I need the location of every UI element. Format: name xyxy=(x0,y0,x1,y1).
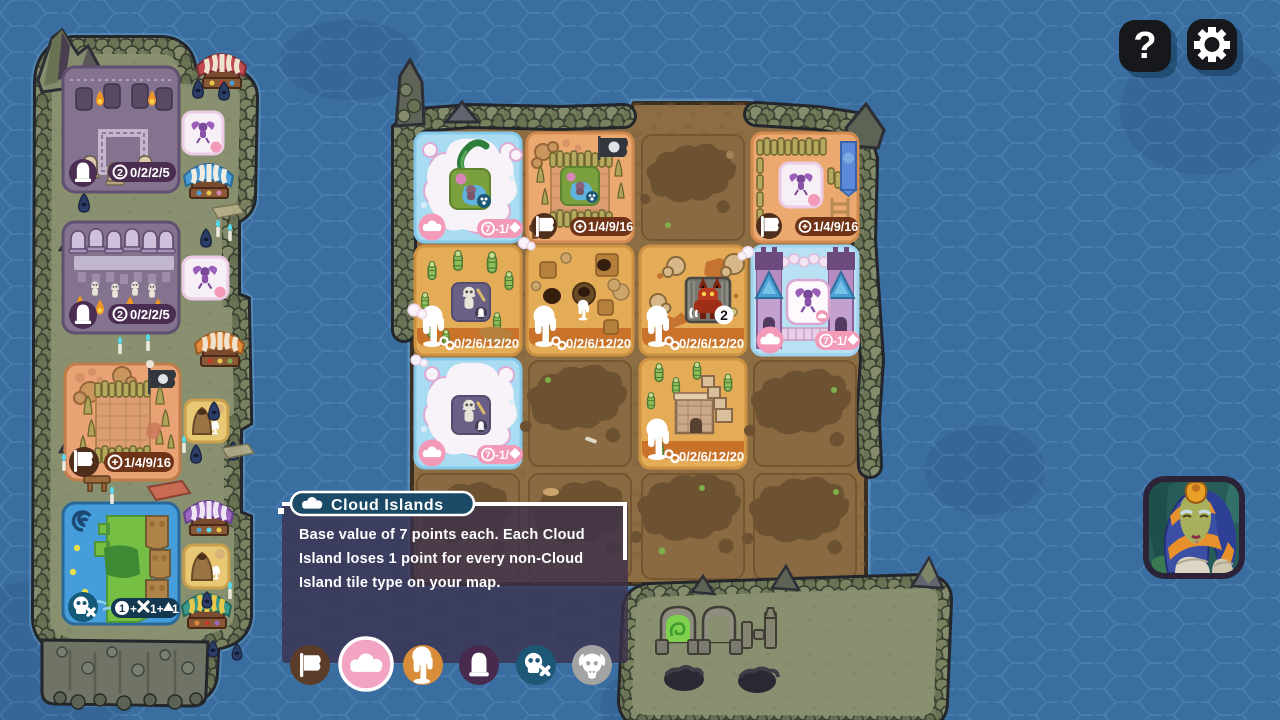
svg-text:?: ? xyxy=(1133,25,1156,67)
svg-text:7: 7 xyxy=(485,224,490,235)
svg-text:1+: 1+ xyxy=(150,602,164,616)
svg-text:0/2/6/12/20: 0/2/6/12/20 xyxy=(566,336,631,351)
svg-text:0/2/6/12/20: 0/2/6/12/20 xyxy=(679,336,744,351)
svg-text:-1/: -1/ xyxy=(495,222,510,236)
svg-text:2: 2 xyxy=(117,167,123,179)
svg-text:7: 7 xyxy=(823,336,828,347)
svg-text:0/2/2/5: 0/2/2/5 xyxy=(130,165,170,180)
svg-text:1: 1 xyxy=(172,602,179,616)
svg-text:Cloud Islands: Cloud Islands xyxy=(331,497,444,514)
svg-text:1/4/9/16: 1/4/9/16 xyxy=(588,220,633,234)
svg-text:0/2/6/12/20: 0/2/6/12/20 xyxy=(679,449,744,464)
svg-text:-1/: -1/ xyxy=(495,448,510,462)
svg-text:1: 1 xyxy=(119,603,125,615)
svg-text:-1/: -1/ xyxy=(833,334,848,348)
svg-text:0/2/6/12/20: 0/2/6/12/20 xyxy=(454,336,519,351)
svg-text:Island tile type on your map.: Island tile type on your map. xyxy=(299,575,501,591)
svg-text:Island loses 1 point for every: Island loses 1 point for every non-Cloud xyxy=(299,551,583,567)
svg-text:7: 7 xyxy=(485,450,490,461)
svg-text:2: 2 xyxy=(117,309,123,321)
svg-text:1/4/9/16: 1/4/9/16 xyxy=(124,455,171,470)
svg-text:1/4/9/16: 1/4/9/16 xyxy=(813,220,858,234)
svg-text:Base value of 7 points each. E: Base value of 7 points each. Each Cloud xyxy=(299,527,585,543)
svg-text:0/2/2/5: 0/2/2/5 xyxy=(130,307,170,322)
svg-text:+: + xyxy=(130,602,137,616)
svg-text:2: 2 xyxy=(720,307,728,323)
